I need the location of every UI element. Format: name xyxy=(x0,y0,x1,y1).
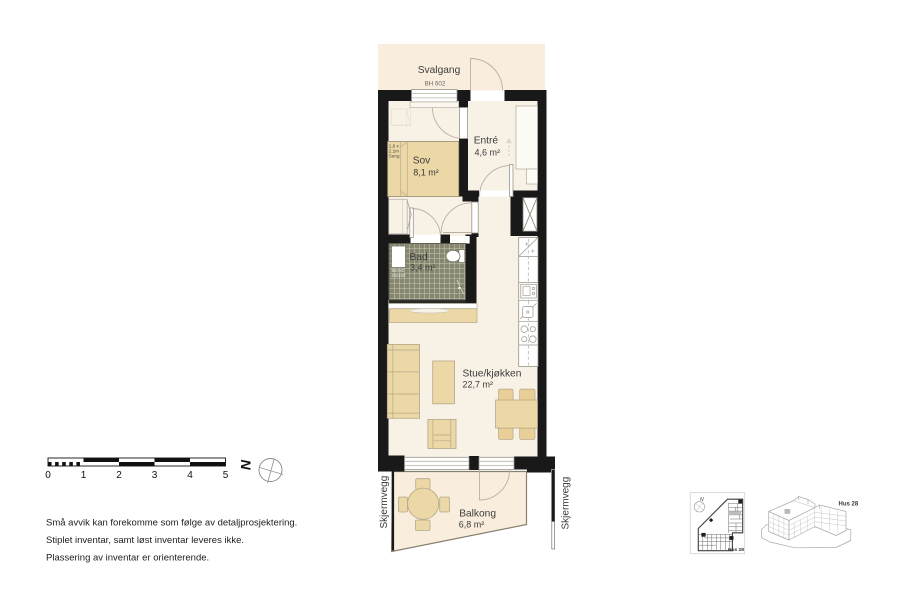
svg-text:Hus 28: Hus 28 xyxy=(839,502,859,508)
svg-text:4: 4 xyxy=(187,470,193,481)
svg-text:Entré: Entré xyxy=(474,136,499,147)
svg-text:Bad: Bad xyxy=(410,252,428,263)
svg-text:N: N xyxy=(238,460,254,471)
svg-text:N: N xyxy=(700,497,704,503)
svg-text:0: 0 xyxy=(45,470,51,481)
svg-text:Sov: Sov xyxy=(413,156,431,167)
svg-text:8,1 m²: 8,1 m² xyxy=(413,168,439,178)
svg-text:Hus 28: Hus 28 xyxy=(728,547,744,553)
svg-text:Balkong: Balkong xyxy=(459,509,496,520)
svg-text:Svalgang: Svalgang xyxy=(418,65,461,76)
svg-text:Stiplet inventar, samt løst in: Stiplet inventar, samt løst inventar lev… xyxy=(46,535,244,546)
svg-text:60x400: 60x400 xyxy=(392,273,406,278)
svg-text:Små avvik kan forekomme som fø: Små avvik kan forekomme som følge av det… xyxy=(46,518,297,529)
svg-text:2: 2 xyxy=(116,470,122,481)
svg-text:6,8 m²: 6,8 m² xyxy=(459,520,485,530)
svg-text:Skjermvegg: Skjermvegg xyxy=(379,476,390,529)
svg-text:4,6 m²: 4,6 m² xyxy=(475,148,501,158)
svg-text:Stue/kjøkken: Stue/kjøkken xyxy=(463,369,522,380)
svg-text:Plassering av inventar er orie: Plassering av inventar er orienterende. xyxy=(46,553,209,564)
svg-text:22,7 m²: 22,7 m² xyxy=(463,380,494,390)
svg-text:5: 5 xyxy=(223,470,229,481)
svg-text:1: 1 xyxy=(81,470,87,481)
svg-text:3,4 m²: 3,4 m² xyxy=(410,263,436,273)
svg-text:3: 3 xyxy=(152,470,158,481)
svg-text:Seng: Seng xyxy=(389,154,400,159)
svg-text:Skjermvegg: Skjermvegg xyxy=(561,477,572,530)
svg-text:BH 602: BH 602 xyxy=(425,81,446,88)
